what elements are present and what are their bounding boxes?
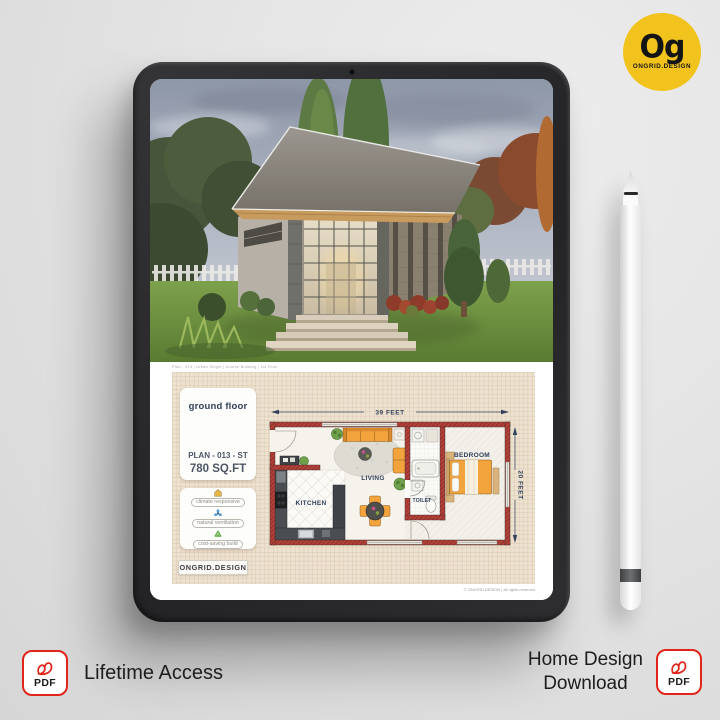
lifetime-access-label: Lifetime Access xyxy=(84,662,223,685)
home-design-line: Home Design xyxy=(528,648,643,672)
pencil-neck xyxy=(623,195,639,205)
dim-width-label: 39 FEET xyxy=(375,410,404,417)
plan-paper: 39 FEET 20 FEET KITCHEN LIVING TOILET BE… xyxy=(172,372,535,584)
room-label-toilet: TOILET xyxy=(413,498,432,504)
pencil-body xyxy=(620,205,641,569)
home-design-download-link[interactable]: Home Design Download PDF xyxy=(528,648,702,696)
tablet-screen: Plan - 013 | Urban Single | Source Build… xyxy=(150,79,553,600)
feature-label: natural ventilation xyxy=(192,519,244,529)
tablet: Plan - 013 | Urban Single | Source Build… xyxy=(133,62,570,622)
brand-logo: Og ONGRID.DESIGN xyxy=(623,13,701,91)
home-design-download-label: Home Design Download xyxy=(528,648,643,696)
acrobat-swirl-icon xyxy=(668,657,690,677)
stage: Og ONGRID.DESIGN xyxy=(0,0,720,720)
plan-page: Plan - 013 | Urban Single | Source Build… xyxy=(150,362,553,600)
copyright-text: © ONGRID.DESIGN | all rights reserved xyxy=(464,587,535,592)
pencil-band xyxy=(620,569,641,582)
download-line: Download xyxy=(528,672,643,696)
acrobat-swirl-icon xyxy=(34,658,56,678)
room-label-living: LIVING xyxy=(361,475,384,482)
lifetime-access-link[interactable]: PDF Lifetime Access xyxy=(22,650,223,696)
features-card: climate responsive natural ventilation xyxy=(180,488,256,549)
feature-item: climate responsive xyxy=(191,488,245,507)
pencil-tip xyxy=(623,170,638,192)
logo-monogram-icon: Og xyxy=(640,33,685,63)
plan-area: 780 SQ.FT xyxy=(180,463,256,475)
front-camera-icon xyxy=(349,69,355,75)
plan-code: PLAN - 013 - ST xyxy=(180,451,256,460)
pdf-badge-label: PDF xyxy=(668,677,690,687)
recycle-icon xyxy=(213,530,223,539)
climate-house-icon xyxy=(213,488,223,497)
pdf-file-icon: PDF xyxy=(22,650,68,696)
house-render xyxy=(150,79,553,362)
pdf-file-icon: PDF xyxy=(656,649,702,695)
feature-item: cost-saving build xyxy=(193,530,242,549)
apple-pencil xyxy=(618,170,643,610)
plan-brand-box: ONGRID.DESIGN xyxy=(178,560,248,575)
feature-item: natural ventilation xyxy=(192,509,244,528)
dim-height-label: 20 FEET xyxy=(517,470,524,499)
pdf-badge-label: PDF xyxy=(34,678,56,688)
ventilation-fan-icon xyxy=(213,509,223,518)
plan-meta-line: Plan - 013 | Urban Single | Source Build… xyxy=(172,364,278,369)
feature-label: cost-saving build xyxy=(193,540,242,550)
plan-title: ground floor xyxy=(180,401,256,412)
feature-label: climate responsive xyxy=(191,498,245,508)
room-label-kitchen: KITCHEN xyxy=(296,500,327,507)
ground-floor-card: ground floor PLAN - 013 - ST 780 SQ.FT xyxy=(180,388,256,480)
pencil-ring xyxy=(624,192,638,195)
room-label-bedroom: BEDROOM xyxy=(454,452,490,459)
pencil-cap xyxy=(620,582,641,610)
